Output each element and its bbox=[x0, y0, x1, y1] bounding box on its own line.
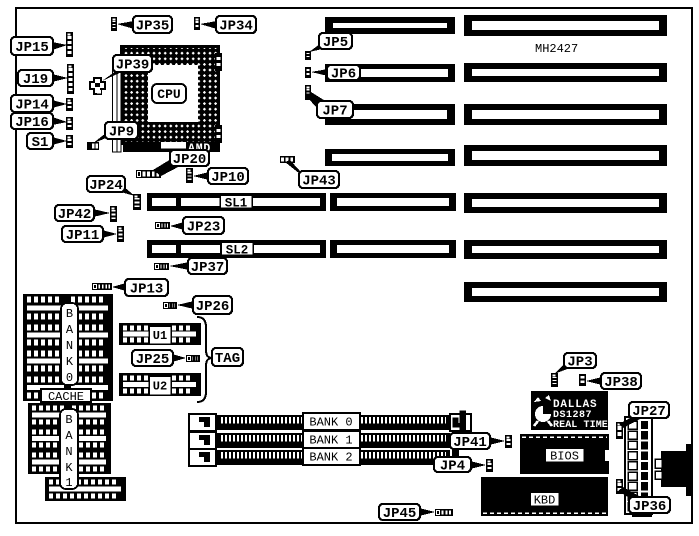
svg-text:N: N bbox=[66, 339, 73, 353]
svg-text:B: B bbox=[66, 307, 73, 321]
svg-text:1: 1 bbox=[65, 476, 72, 490]
svg-text:JP16: JP16 bbox=[15, 115, 49, 131]
svg-text:JP26: JP26 bbox=[196, 299, 230, 315]
svg-text:JP25: JP25 bbox=[136, 352, 170, 368]
svg-text:JP5: JP5 bbox=[323, 35, 348, 51]
svg-text:JP3: JP3 bbox=[567, 355, 592, 371]
svg-text:JP11: JP11 bbox=[66, 228, 100, 244]
svg-text:K: K bbox=[66, 355, 74, 369]
svg-text:JP4: JP4 bbox=[440, 459, 465, 475]
svg-text:CPU: CPU bbox=[157, 87, 180, 102]
svg-text:JP6: JP6 bbox=[331, 67, 356, 83]
svg-text:JP39: JP39 bbox=[116, 58, 150, 74]
svg-text:N: N bbox=[65, 445, 72, 459]
svg-text:B: B bbox=[65, 413, 72, 427]
svg-text:JP37: JP37 bbox=[191, 260, 225, 276]
svg-text:JP43: JP43 bbox=[302, 174, 336, 190]
svg-text:JP15: JP15 bbox=[15, 40, 49, 56]
svg-text:BANK 0: BANK 0 bbox=[309, 416, 352, 430]
svg-text:JP23: JP23 bbox=[187, 220, 221, 236]
svg-text:JP7: JP7 bbox=[322, 104, 347, 120]
svg-text:KBD: KBD bbox=[534, 494, 556, 508]
svg-text:JP13: JP13 bbox=[130, 282, 164, 298]
svg-text:JP38: JP38 bbox=[604, 375, 638, 391]
svg-text:S1: S1 bbox=[32, 135, 49, 151]
svg-text:REAL TIME: REAL TIME bbox=[553, 420, 608, 431]
svg-text:JP41: JP41 bbox=[453, 435, 487, 451]
svg-text:A: A bbox=[66, 323, 74, 337]
svg-text:JP35: JP35 bbox=[136, 19, 170, 35]
svg-text:JP24: JP24 bbox=[89, 178, 123, 194]
svg-text:0: 0 bbox=[66, 371, 73, 385]
svg-text:JP14: JP14 bbox=[15, 98, 49, 114]
svg-text:U2: U2 bbox=[153, 380, 167, 394]
svg-text:BIOS: BIOS bbox=[550, 450, 579, 464]
svg-text:J19: J19 bbox=[23, 72, 48, 88]
svg-text:JP36: JP36 bbox=[633, 499, 667, 515]
svg-text:SL2: SL2 bbox=[226, 244, 249, 258]
svg-text:JP34: JP34 bbox=[219, 19, 253, 35]
svg-text:SL1: SL1 bbox=[225, 197, 248, 211]
svg-text:U1: U1 bbox=[153, 329, 167, 343]
svg-text:JP10: JP10 bbox=[211, 170, 245, 186]
svg-text:BANK 1: BANK 1 bbox=[309, 434, 352, 448]
svg-text:TAG: TAG bbox=[215, 351, 240, 367]
svg-text:JP27: JP27 bbox=[632, 404, 666, 420]
svg-text:BANK 2: BANK 2 bbox=[309, 451, 352, 465]
svg-text:CACHE: CACHE bbox=[48, 390, 84, 404]
svg-text:JP42: JP42 bbox=[58, 207, 92, 223]
svg-text:K: K bbox=[65, 461, 73, 475]
svg-text:JP9: JP9 bbox=[109, 125, 134, 141]
svg-text:JP20: JP20 bbox=[173, 152, 207, 168]
svg-text:MH2427: MH2427 bbox=[535, 42, 578, 56]
svg-text:JP45: JP45 bbox=[383, 506, 417, 522]
svg-text:A: A bbox=[65, 429, 73, 443]
